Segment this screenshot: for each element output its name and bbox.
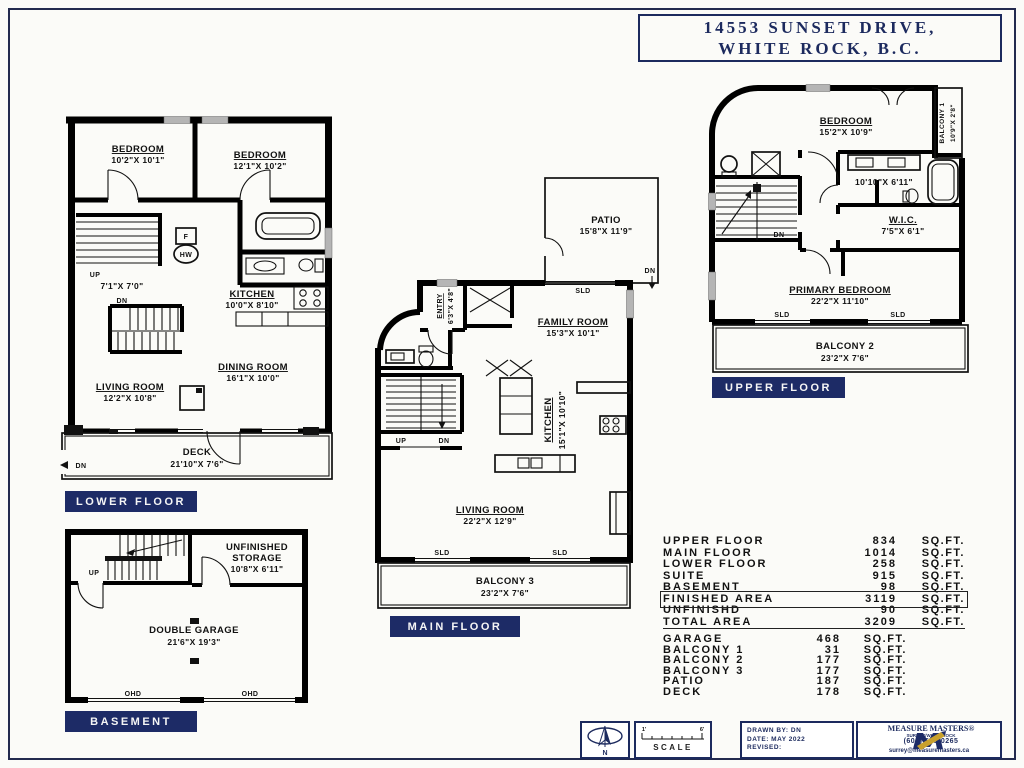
toilet-icon <box>903 189 918 203</box>
primary-bedroom-label: PRIMARY BEDROOM <box>789 285 891 296</box>
drawn-by: DRAWN BY: DN <box>747 727 847 736</box>
basement-tag: BASEMENT <box>65 711 197 732</box>
sld-label-top: SLD <box>575 288 590 295</box>
floor-plan-sheet: 14553 SUNSET DRIVE, WHITE ROCK, B.C. <box>0 0 1024 768</box>
title-line-1: 14553 SUNSET DRIVE, <box>704 17 937 38</box>
area-row-total: TOTAL AREA3209SQ.FT. <box>663 617 965 630</box>
lower-bedroom1-dims: 10'2"X 10'1" <box>111 155 164 165</box>
family-room-dims: 15'3"X 10'1" <box>546 328 599 338</box>
basement-plan: UP UNFINISHED STORAGE 10'8"X 6'11" DOUBL… <box>55 525 320 740</box>
deck-dims: 21'10"X 7'6" <box>170 459 223 469</box>
scale-left-label: 1' <box>642 727 647 733</box>
kitchen-island <box>500 378 532 434</box>
drawn-box: DRAWN BY: DN DATE: MAY 2022 REVISED: <box>740 721 854 759</box>
deck-label: DECK <box>183 447 212 458</box>
area-table-extra: GARAGE468SQ.FT. BALCONY 131SQ.FT. BALCON… <box>663 634 907 698</box>
main-kitchen-label: KITCHEN <box>543 397 554 442</box>
lower-dn-label: DN <box>117 298 128 305</box>
vanity-sink-icon <box>246 258 284 274</box>
area-row: UPPER FLOOR834SQ.FT. <box>663 536 965 548</box>
north-label: N <box>602 750 607 757</box>
patio-dn-label: DN <box>645 268 656 275</box>
balcony2-label: BALCONY 2 <box>816 341 874 352</box>
stove-icon <box>294 287 328 309</box>
brand-box: MEASURE MASTERS® SURREY/WHITE ROCK (604)… <box>856 721 1002 759</box>
basement-up-label: UP <box>89 570 100 577</box>
sld-label-left: SLD <box>434 550 449 557</box>
main-kitchen-dims: 15'1"X 10'10" <box>557 391 567 449</box>
lower-living-dims: 12'2"X 10'8" <box>103 393 156 403</box>
ensuite-fixtures <box>721 152 780 177</box>
deck-dn-label: DN <box>76 463 87 470</box>
area-row: LOWER FLOOR258SQ.FT. <box>663 559 965 571</box>
sld-label-right: SLD <box>552 550 567 557</box>
measure-masters-logo-icon <box>911 729 947 751</box>
main-dn-label: DN <box>439 438 450 445</box>
balcony3-dims: 23'2"X 7'6" <box>481 588 529 598</box>
main-floor-plan: PATIO 15'8"X 11'9" DN SLD ENTRY 6'3"X 4'… <box>370 168 670 643</box>
scale-ruler-icon: 1' 6' SCALE <box>636 723 710 757</box>
upper-bedroom-label: BEDROOM <box>820 116 872 127</box>
lower-kitchen-dims: 10'0"X 8'10" <box>225 300 278 310</box>
overhead-door-label-2: OHD <box>242 691 259 698</box>
area-row: DECK178SQ.FT. <box>663 687 907 698</box>
lower-kitchen-label: KITCHEN <box>229 289 274 300</box>
dining-room-dims: 16'1"X 10'0" <box>226 373 279 383</box>
garage-label: DOUBLE GARAGE <box>149 625 239 636</box>
stove-icon <box>600 416 626 434</box>
lower-up-label: UP <box>90 272 101 279</box>
lower-hall-dims: 7'1"X 7'0" <box>100 281 143 291</box>
fireplace-icon <box>180 386 204 410</box>
upper-floor-stairs <box>716 182 797 240</box>
patio-dims: 15'8"X 11'9" <box>580 226 633 236</box>
primary-bedroom-dims: 22'2"X 11'10" <box>811 296 869 306</box>
lower-living-label: LIVING ROOM <box>96 382 164 393</box>
main-living-label: LIVING ROOM <box>456 505 524 516</box>
title-box: 14553 SUNSET DRIVE, WHITE ROCK, B.C. <box>638 14 1002 62</box>
upper-bedroom-dims: 15'2"X 10'9" <box>819 127 872 137</box>
storage-label-1: UNFINISHED <box>226 542 288 553</box>
basement-stairs <box>105 534 184 580</box>
sld-label-left: SLD <box>774 312 789 319</box>
balcony1-dims: 10'9"X 2'8" <box>950 104 957 142</box>
area-row: GARAGE468SQ.FT. <box>663 634 907 645</box>
upper-bath-dims: 10'10"X 6'11" <box>855 177 913 187</box>
main-floor-tag: MAIN FLOOR <box>390 616 520 637</box>
family-room-label: FAMILY ROOM <box>538 317 608 328</box>
lower-bedroom2-dims: 12'1"X 10'2" <box>233 161 286 171</box>
main-living-dims: 22'2"X 12'9" <box>463 516 516 526</box>
wic-label: W.I.C. <box>889 215 917 226</box>
drawn-revised: REVISED: <box>747 744 847 753</box>
powder-room-fixtures <box>386 346 433 367</box>
balcony3-label: BALCONY 3 <box>476 576 534 587</box>
title-line-2: WHITE ROCK, B.C. <box>718 38 921 59</box>
overhead-door-label-1: OHD <box>125 691 142 698</box>
area-row: UNFINISHD90SQ.FT. <box>663 605 965 617</box>
garage-post <box>190 658 199 664</box>
entry-dims: 6'3"X 4'8" <box>448 288 455 324</box>
scale-label: SCALE <box>653 743 693 752</box>
north-arrow-icon: N <box>582 723 628 757</box>
upper-floor-plan: BEDROOM 15'2"X 10'9" BALCONY 1 10'9"X 2'… <box>700 80 975 405</box>
wic-dims: 7'5"X 6'1" <box>881 226 924 236</box>
lower-bedroom2-label: BEDROOM <box>234 150 286 161</box>
lower-floor-plan: BEDROOM 10'2"X 10'1" BEDROOM 12'1"X 10'2… <box>55 110 340 520</box>
kitchen-counter <box>236 312 328 326</box>
lower-bedroom1-label: BEDROOM <box>112 144 164 155</box>
patio-label: PATIO <box>591 215 621 226</box>
garage-dims: 21'6"X 19'3" <box>167 637 220 647</box>
balcony1-label: BALCONY 1 <box>939 102 946 143</box>
patio-down-arrow-icon <box>649 283 656 289</box>
lower-floor-tag: LOWER FLOOR <box>65 491 197 512</box>
sld-label-right: SLD <box>890 312 905 319</box>
scale-right-label: 6' <box>700 727 705 733</box>
garage-post <box>190 618 199 624</box>
main-up-label: UP <box>396 438 407 445</box>
toilet-icon <box>299 259 323 272</box>
area-table-main: UPPER FLOOR834SQ.FT. MAIN FLOOR1014SQ.FT… <box>663 536 965 629</box>
bathtub-icon <box>928 160 958 204</box>
upper-dn-label: DN <box>774 232 785 239</box>
balcony2-dims: 23'2"X 7'6" <box>821 353 869 363</box>
upper-floor-tag: UPPER FLOOR <box>712 377 845 398</box>
bathtub-icon <box>256 213 320 239</box>
main-floor-stairs <box>386 377 456 430</box>
north-box: N <box>580 721 630 759</box>
bath-vanity-icon <box>848 155 920 170</box>
furnace-label: F <box>184 234 189 241</box>
scale-box: 1' 6' SCALE <box>634 721 712 759</box>
dining-room-label: DINING ROOM <box>218 362 288 373</box>
entry-label: ENTRY <box>437 293 444 318</box>
hot-water-label: HW <box>180 252 192 259</box>
storage-label-2: STORAGE <box>232 553 282 564</box>
drawn-date: DATE: MAY 2022 <box>747 736 847 745</box>
area-row: BASEMENT98SQ.FT. <box>663 582 965 594</box>
storage-dims: 10'8"X 6'11" <box>231 564 284 574</box>
